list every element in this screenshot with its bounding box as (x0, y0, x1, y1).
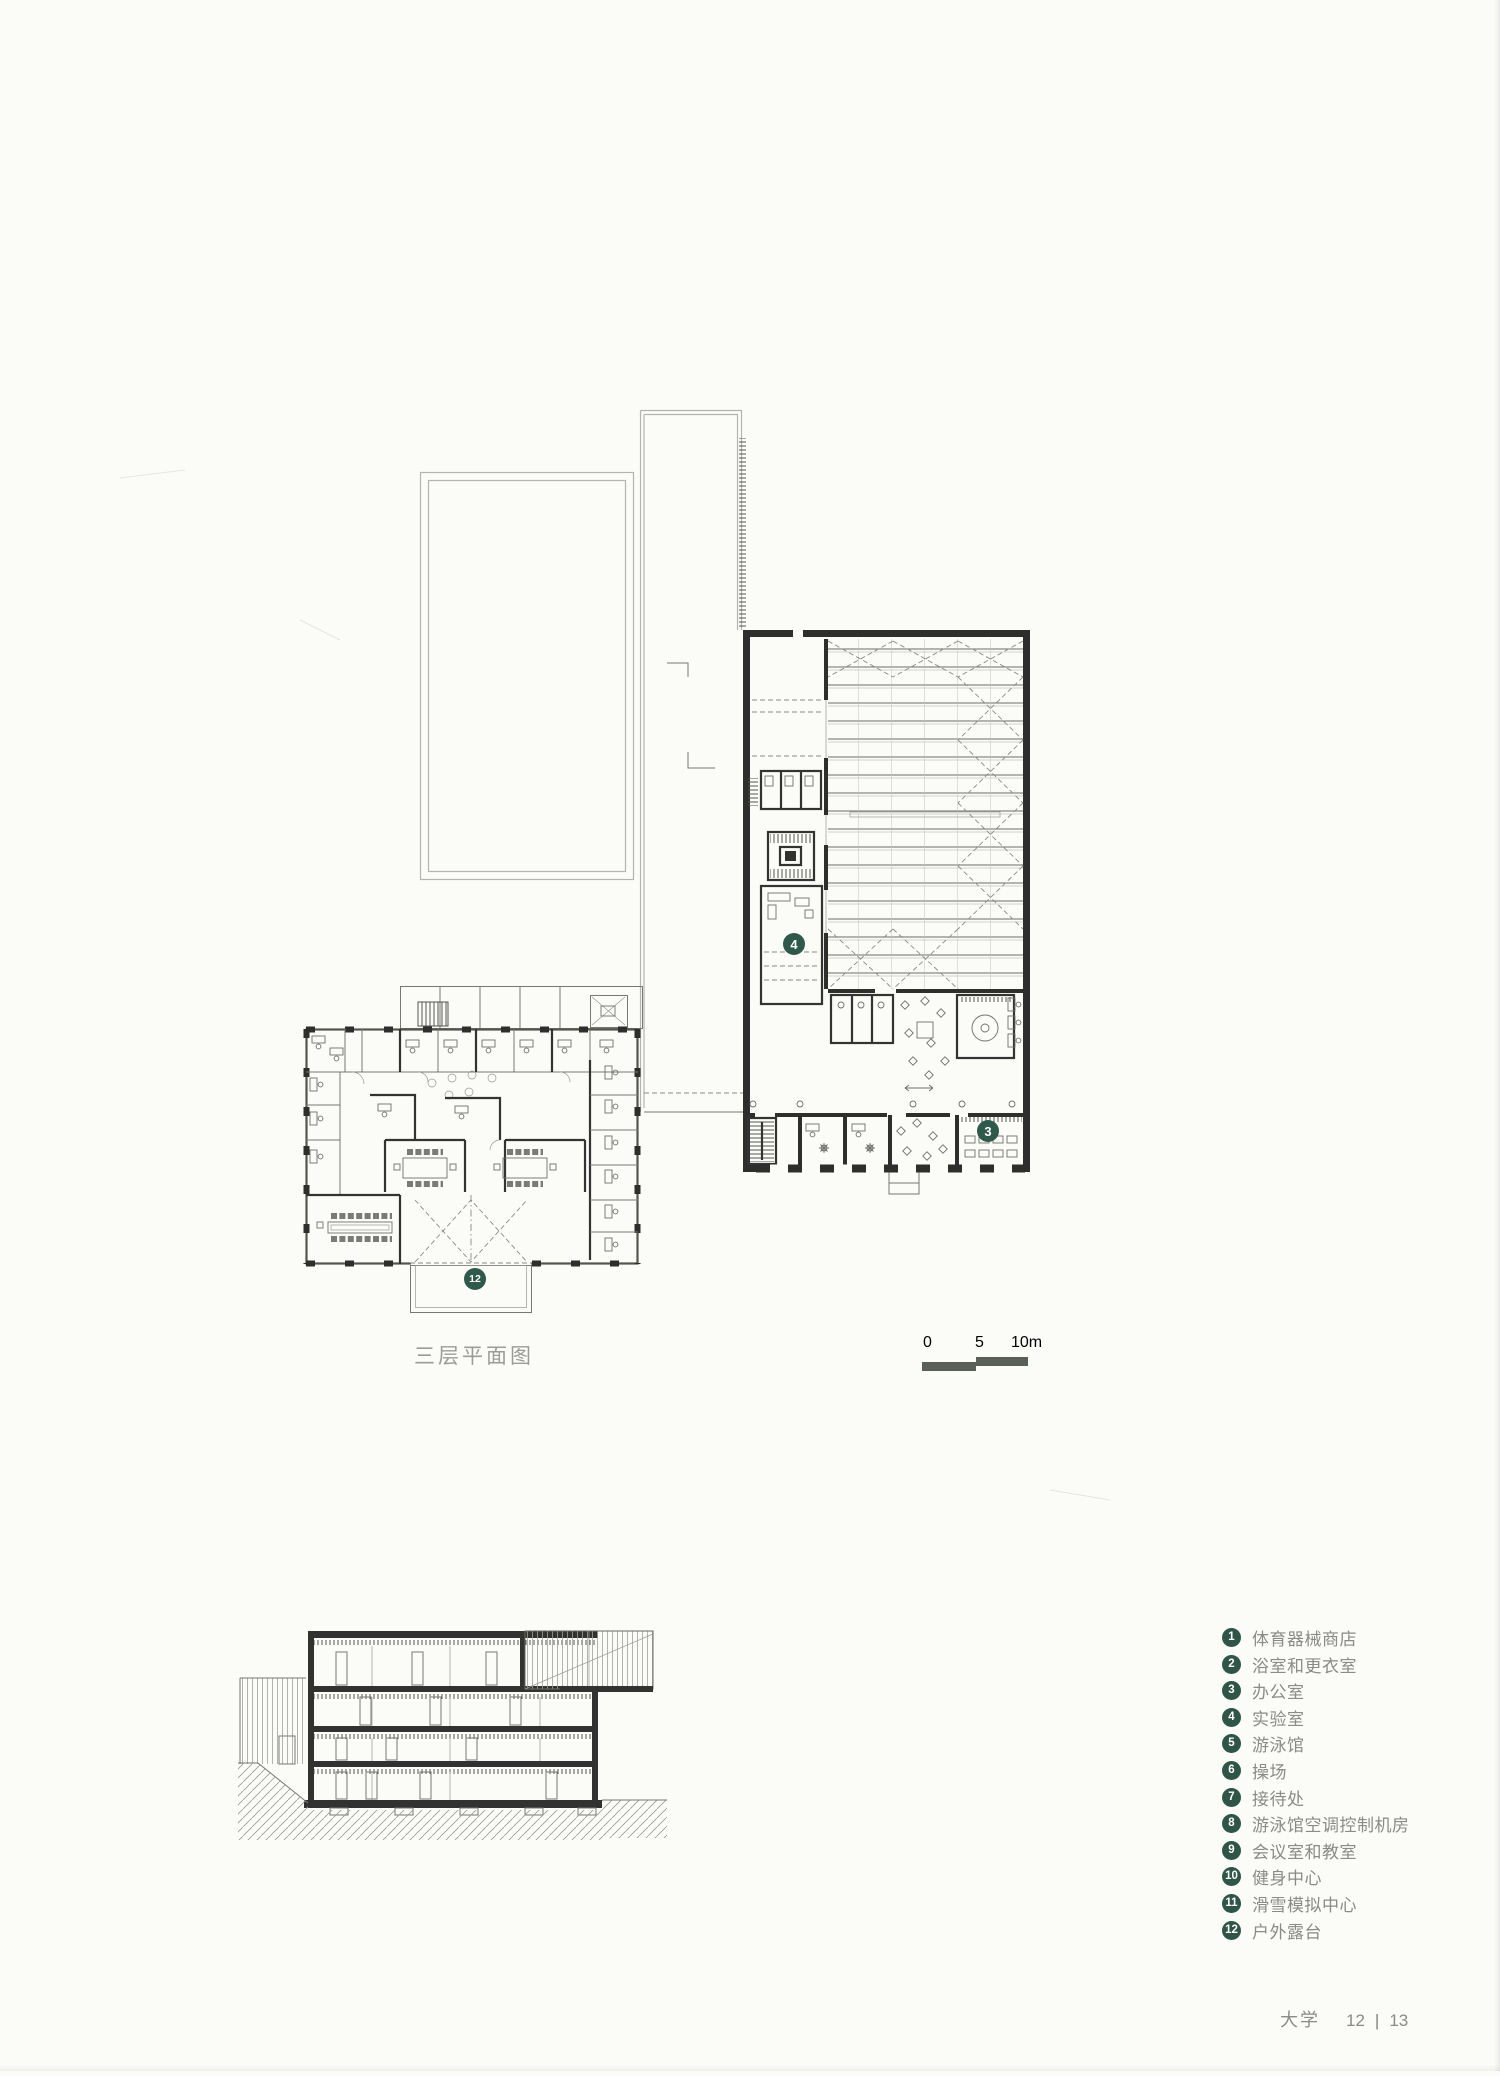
legend-item-number: 11 (1222, 1894, 1241, 1913)
legend-item: 4 实验室 (1222, 1708, 1410, 1727)
scale-bar: 0 5 10m (920, 1334, 1045, 1374)
legend-item-label: 游泳馆空调控制机房 (1252, 1811, 1410, 1836)
legend-item-number: 1 (1222, 1628, 1241, 1647)
corridor-strip (641, 411, 747, 1113)
legend-item-number: 12 (1222, 1921, 1241, 1940)
legend: 1 体育器械商店 2 浴室和更衣室 3 办公室 4 实验室 5 游泳馆 6 操场… (1222, 1628, 1410, 1947)
legend-item-number: 7 (1222, 1788, 1241, 1807)
legend-item-number: 4 (1222, 1708, 1241, 1727)
scale-label-5: 5 (975, 1334, 984, 1352)
legend-item-number: 9 (1222, 1841, 1241, 1860)
book-page: 4 3 12 三层平面图 0 5 10m 1 体育器械商店 2 浴室和更衣室 3… (0, 0, 1500, 2071)
legend-item-label: 接待处 (1252, 1785, 1305, 1810)
legend-item-number: 5 (1222, 1734, 1241, 1753)
legend-item-label: 游泳馆 (1252, 1731, 1305, 1756)
legend-item-label: 办公室 (1252, 1678, 1305, 1703)
legend-item: 5 游泳馆 (1222, 1734, 1410, 1753)
lounge-furniture (901, 997, 949, 1091)
meeting-table-b (494, 1152, 556, 1184)
scan-edge-right (1494, 0, 1500, 2071)
legend-item-label: 会议室和教室 (1252, 1838, 1357, 1863)
legend-item: 1 体育器械商店 (1222, 1628, 1410, 1647)
scale-bar-segment-upper (976, 1357, 1028, 1366)
right-building-plan (746, 628, 1027, 1194)
legend-item-label: 健身中心 (1252, 1864, 1322, 1889)
legend-item: 6 操场 (1222, 1761, 1410, 1780)
conference-table (317, 1216, 392, 1239)
legend-item-number: 3 (1222, 1681, 1241, 1700)
section-drawing (238, 1631, 667, 1840)
footer-page-left: 12 (1346, 2011, 1365, 2031)
scale-label-0: 0 (923, 1334, 932, 1352)
legend-item-label: 户外露台 (1252, 1918, 1322, 1943)
meeting-table-a (394, 1152, 456, 1184)
legend-item: 8 游泳馆空调控制机房 (1222, 1814, 1410, 1833)
footer-page-right: 13 (1389, 2011, 1408, 2031)
scan-edge-bottom (0, 2065, 1500, 2071)
legend-item-number: 6 (1222, 1761, 1241, 1780)
terrace (411, 1195, 532, 1313)
legend-item-number: 10 (1222, 1867, 1241, 1886)
plan-marker-office: 3 (977, 1120, 999, 1142)
legend-item-number: 2 (1222, 1655, 1241, 1674)
legend-item: 3 办公室 (1222, 1681, 1410, 1700)
plan-caption: 三层平面图 (414, 1340, 534, 1370)
left-building-top-wing (401, 987, 643, 1029)
page-footer: 大学 12 | 13 (1280, 2006, 1408, 2032)
legend-item: 11 滑雪模拟中心 (1222, 1894, 1410, 1913)
legend-item: 9 会议室和教室 (1222, 1841, 1410, 1860)
roof-overhang (525, 1631, 653, 1692)
legend-item-number: 8 (1222, 1814, 1241, 1833)
legend-item: 7 接待处 (1222, 1788, 1410, 1807)
legend-item-label: 滑雪模拟中心 (1252, 1891, 1357, 1916)
plan-marker-terrace: 12 (464, 1268, 486, 1290)
roof-outline (421, 473, 634, 880)
footer-book-title: 大学 (1280, 2006, 1320, 2032)
legend-item-label: 体育器械商店 (1252, 1625, 1357, 1650)
legend-item: 12 户外露台 (1222, 1921, 1410, 1940)
atrium-plants (428, 1071, 496, 1099)
scale-bar-segment-lower (922, 1362, 976, 1371)
legend-item-label: 浴室和更衣室 (1252, 1652, 1357, 1677)
legend-item: 10 健身中心 (1222, 1867, 1410, 1886)
scale-label-10m: 10m (1011, 1334, 1042, 1352)
legend-item: 2 浴室和更衣室 (1222, 1655, 1410, 1674)
footer-separator: | (1375, 2011, 1379, 2031)
plan-marker-lab: 4 (783, 933, 805, 955)
legend-item-label: 操场 (1252, 1758, 1287, 1783)
legend-item-label: 实验室 (1252, 1705, 1305, 1730)
